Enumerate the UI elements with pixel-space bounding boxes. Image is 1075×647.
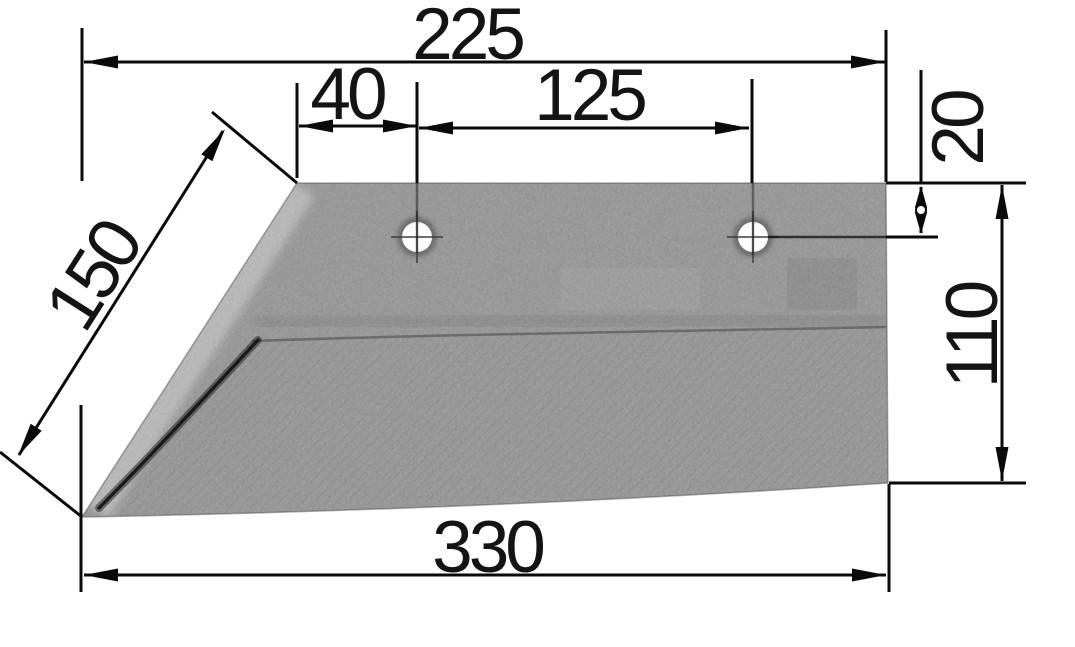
dimension-bottom-width: 330 <box>84 507 886 588</box>
dim-label-hole-top-offset: 20 <box>918 91 999 166</box>
technical-drawing-svg: 225 40 125 20 110 150 <box>0 0 1075 647</box>
arrow-right <box>383 120 417 133</box>
arrow-up <box>996 185 1009 219</box>
arrow-right <box>852 569 886 582</box>
dimension-top-width: 225 <box>84 0 885 75</box>
dim-label-hole-spacing: 125 <box>534 55 645 136</box>
seam-shadow-band <box>255 317 886 325</box>
scan-artifact-dark <box>787 258 857 310</box>
scan-artifact-light <box>560 268 700 310</box>
arrow-down <box>996 447 1009 481</box>
arrow-right <box>851 56 885 69</box>
arrow-upper <box>201 129 225 161</box>
arrow-left <box>84 569 118 582</box>
ext-slant-bottom <box>0 452 82 517</box>
arrow-lower <box>18 424 42 456</box>
dim-label-top-width: 225 <box>412 0 523 75</box>
dim-label-right-height: 110 <box>932 282 1013 388</box>
arrow-left <box>84 56 118 69</box>
arrow-right <box>715 122 749 135</box>
dim-label-bottom-width: 330 <box>432 507 543 588</box>
dimension-hole-top-offset: 20 <box>915 91 999 234</box>
drawing-canvas: 225 40 125 20 110 150 <box>0 0 1075 647</box>
ext-slant-top <box>212 112 297 183</box>
part-blade <box>82 183 888 517</box>
dimension-hole-edge-offset: 40 <box>299 54 417 135</box>
dim-label-hole-edge-offset: 40 <box>310 54 385 135</box>
dimension-right-height: 110 <box>932 185 1013 481</box>
arrow-left <box>419 122 453 135</box>
dim-center-dot <box>916 205 926 215</box>
dim-label-cutting-edge: 150 <box>30 207 158 344</box>
